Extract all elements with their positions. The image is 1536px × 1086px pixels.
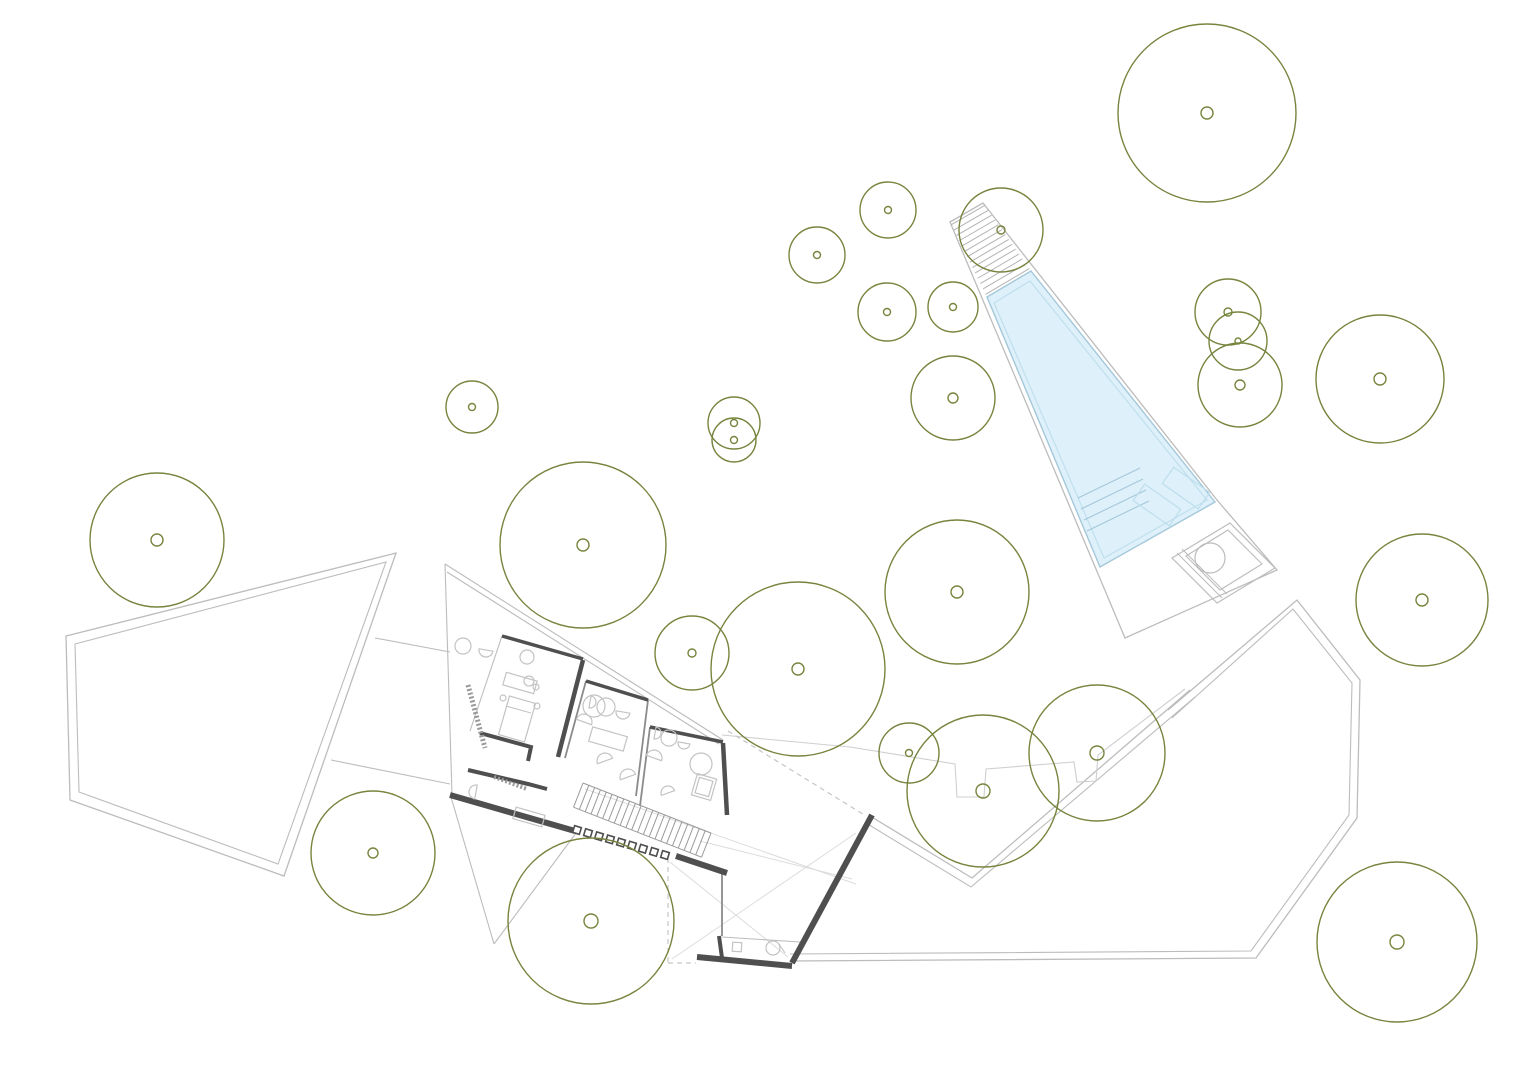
upper-terrace-edge-inner bbox=[866, 697, 1195, 887]
furniture-circle bbox=[500, 695, 506, 701]
tree-trunk-dot bbox=[1201, 107, 1213, 119]
tree-canopy-circle bbox=[311, 791, 435, 915]
interior-wall bbox=[636, 700, 648, 796]
fixture-d-shape bbox=[678, 742, 690, 749]
tree-canopy-circle bbox=[712, 418, 756, 462]
tree-trunk-dot bbox=[469, 404, 476, 411]
furniture-circle bbox=[766, 941, 780, 955]
site-plan-page bbox=[0, 0, 1536, 1086]
structural-wall bbox=[586, 681, 648, 700]
tree-canopy-circle bbox=[789, 227, 845, 283]
furniture-rect bbox=[732, 942, 741, 951]
tree-trunk-dot bbox=[885, 207, 892, 214]
structural-wall bbox=[450, 795, 575, 831]
terrace-path-line bbox=[331, 760, 450, 784]
building-outline-line bbox=[722, 937, 800, 942]
structural-wall bbox=[676, 856, 727, 873]
tree-canopy-circle bbox=[711, 582, 885, 756]
site-plan-drawing bbox=[0, 0, 1536, 1086]
tree-canopy-circle bbox=[508, 838, 674, 1004]
structural-wall bbox=[480, 733, 531, 761]
structural-wall bbox=[502, 636, 583, 659]
ground-faint-line bbox=[670, 862, 788, 957]
tree-canopy-circle bbox=[1316, 315, 1444, 443]
furniture-rect bbox=[691, 774, 716, 801]
building-outline-line bbox=[451, 797, 494, 944]
fixture-d-shape bbox=[589, 696, 596, 708]
terrace-path-line bbox=[375, 638, 450, 652]
tree-trunk-dot bbox=[792, 663, 804, 675]
furniture-detail-line bbox=[506, 706, 531, 713]
furniture-circle bbox=[690, 753, 712, 775]
furniture-circle bbox=[455, 638, 471, 654]
tree-canopy-circle bbox=[1317, 862, 1477, 1022]
tree-trunk-dot bbox=[906, 750, 913, 757]
tree-trunk-dot bbox=[368, 848, 378, 858]
tree-canopy-circle bbox=[655, 616, 729, 690]
building-outline-line bbox=[445, 564, 452, 795]
right-terrace-outer-outline bbox=[790, 600, 1360, 961]
tree-trunk-dot bbox=[731, 420, 738, 427]
upper-terrace-edge-outer bbox=[870, 690, 1190, 878]
interior-wall bbox=[640, 727, 650, 806]
tree-canopy-circle bbox=[446, 381, 498, 433]
fixture-d-shape bbox=[661, 786, 675, 795]
tree-trunk-dot bbox=[1374, 373, 1386, 385]
tree-trunk-dot bbox=[814, 252, 821, 259]
structural-wall bbox=[468, 770, 547, 789]
tree-canopy-circle bbox=[1198, 343, 1282, 427]
tree-trunk-dot bbox=[1390, 935, 1404, 949]
hidden-edge-dashed-line bbox=[728, 731, 866, 816]
tree-canopy-circle bbox=[907, 715, 1059, 867]
structural-wall bbox=[723, 743, 727, 815]
building-outline-line bbox=[494, 833, 576, 944]
furniture-rect bbox=[503, 672, 537, 693]
fixture-d-shape bbox=[479, 649, 493, 657]
tree-trunk-dot bbox=[948, 393, 958, 403]
furniture-rect bbox=[589, 727, 628, 751]
fixture-d-shape bbox=[616, 711, 630, 719]
tree-canopy-circle bbox=[1356, 534, 1488, 666]
fixture-d-shape bbox=[576, 714, 592, 725]
tree-trunk-dot bbox=[950, 304, 957, 311]
column-square bbox=[661, 851, 670, 860]
tree-trunk-dot bbox=[884, 309, 891, 316]
tree-canopy-circle bbox=[860, 182, 916, 238]
tree-trunk-dot bbox=[1235, 380, 1245, 390]
tree-canopy-circle bbox=[858, 283, 916, 341]
tree-canopy-circle bbox=[500, 462, 666, 628]
tree-canopy-circle bbox=[1195, 279, 1261, 345]
furniture-circle bbox=[597, 698, 615, 716]
tree-trunk-dot bbox=[951, 586, 963, 598]
column-square bbox=[584, 829, 593, 838]
fixture-d-shape bbox=[597, 753, 613, 764]
furniture-rect bbox=[695, 777, 713, 796]
column-square bbox=[650, 848, 659, 857]
lawn-notched-edge bbox=[722, 689, 1185, 797]
tree-trunk-dot bbox=[976, 784, 990, 798]
structural-wall bbox=[792, 815, 872, 963]
tree-canopy-circle bbox=[708, 397, 760, 449]
furniture-circle bbox=[520, 650, 534, 664]
tree-canopy-circle bbox=[928, 282, 978, 332]
tree-trunk-dot bbox=[731, 437, 738, 444]
structural-wall bbox=[697, 957, 792, 966]
tree-trunk-dot bbox=[1416, 594, 1428, 606]
tree-canopy-circle bbox=[1209, 312, 1267, 370]
left-terrace-outer-outline bbox=[66, 553, 396, 876]
furniture-rect bbox=[499, 696, 536, 742]
tree-trunk-dot bbox=[577, 539, 589, 551]
tree-trunk-dot bbox=[584, 914, 598, 928]
fixture-d-shape bbox=[469, 785, 477, 799]
column-square bbox=[573, 826, 582, 835]
tree-trunk-dot bbox=[688, 649, 696, 657]
right-terrace-inner-outline bbox=[790, 609, 1352, 954]
tree-canopy-circle bbox=[885, 520, 1029, 664]
tree-trunk-dot bbox=[151, 534, 163, 546]
tree-canopy-circle bbox=[911, 356, 995, 440]
tree-canopy-circle bbox=[90, 473, 224, 607]
structural-wall bbox=[719, 936, 722, 958]
fixture-d-shape bbox=[646, 750, 662, 761]
tree-trunk-dot bbox=[1090, 746, 1104, 760]
column-square bbox=[639, 844, 648, 853]
fixture-d-shape bbox=[620, 769, 636, 780]
tree-canopy-circle bbox=[1118, 24, 1296, 202]
